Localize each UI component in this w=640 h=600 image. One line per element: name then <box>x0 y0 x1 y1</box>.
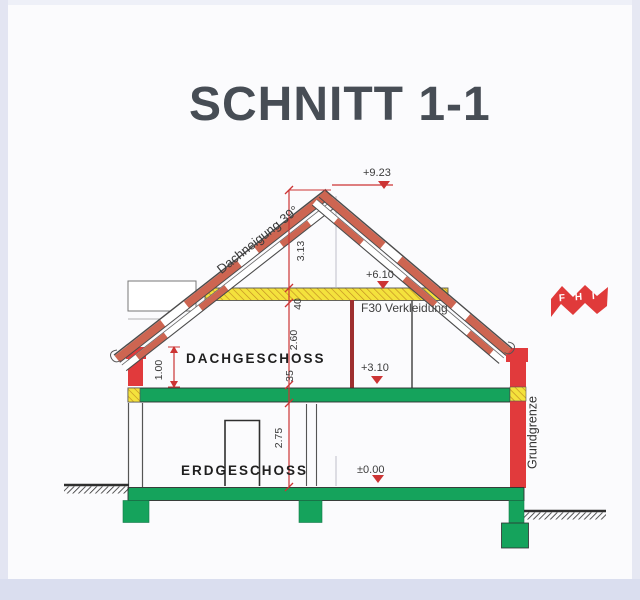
attic-floor-label: DACHGESCHOSS <box>186 351 326 366</box>
ground-slab-and-footings <box>123 488 529 549</box>
first-floor-slab <box>128 388 510 402</box>
level-ground-floor-label: ±0.00 <box>357 464 384 476</box>
scanned-section-drawing-page: SCHNITT 1-1 <box>0 0 640 600</box>
fhi-logo-letter-h: H <box>575 292 583 303</box>
level-ridge-label: +9.23 <box>363 167 391 179</box>
terrain-right <box>524 511 606 520</box>
knee-wall-dimension <box>168 346 180 388</box>
dim-floor-slab: 35 <box>283 346 297 406</box>
level-upper-floor-label: +3.10 <box>361 362 389 374</box>
fhi-logo-letter-i: I <box>592 291 596 302</box>
cladding-label: F30 Verkleidung <box>361 301 448 315</box>
section-drawing-canvas <box>0 0 640 600</box>
dim-ridge-to-ceiling: 3.13 <box>294 221 308 281</box>
level-attic-ceiling-label: +6.10 <box>366 269 394 281</box>
dim-knee-wall: 1.00 <box>152 340 166 400</box>
dim-ground-room-height: 2.75 <box>272 408 286 468</box>
fhi-logo-letter-f: F <box>559 293 566 304</box>
chimney-flue <box>350 300 354 388</box>
boundary-label: Grundgrenze <box>526 388 541 478</box>
ground-floor-label: ERDGESCHOSS <box>181 463 308 478</box>
terrain-left <box>64 485 129 494</box>
